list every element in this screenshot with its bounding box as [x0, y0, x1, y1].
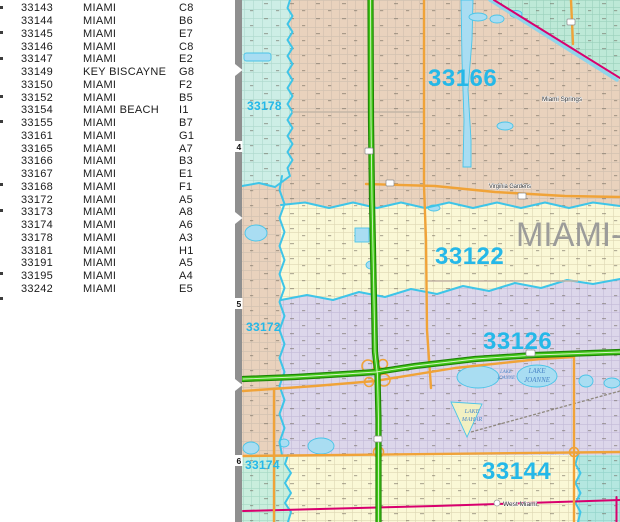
route-shield-icon: [374, 436, 382, 442]
zip-code-cell: 33147: [21, 53, 83, 65]
grid-ref-cell: B6: [179, 15, 235, 27]
zip-table: 33143MIAMIC833144MIAMIB633145MIAMIE73314…: [0, 2, 235, 295]
city-cell: MIAMI: [83, 181, 179, 193]
city-cell: MIAMI: [83, 168, 179, 180]
zip-table-row: 33144MIAMIB6: [0, 15, 235, 28]
grid-ref-cell: B5: [179, 92, 235, 104]
zip-code-cell: 33168: [21, 181, 83, 193]
zip-table-row: 33174MIAMIA6: [0, 219, 235, 232]
grid-ref-cell: G8: [179, 66, 235, 78]
zip-table-row: 33195MIAMIA4: [0, 270, 235, 283]
zip-table-row: 33167MIAMIE1: [0, 168, 235, 181]
city-cell: MIAMI: [83, 117, 179, 129]
route-shield-icon: [365, 148, 373, 154]
svg-text:MAHAR: MAHAR: [461, 417, 483, 423]
zipcode-index-panel: 33143MIAMIC833144MIAMIB633145MIAMIE73314…: [0, 0, 235, 522]
lake: [579, 375, 593, 387]
zip-code-cell: 33144: [21, 15, 83, 27]
city-cell: MIAMI BEACH: [83, 104, 179, 116]
zip-code-cell: 33172: [21, 194, 83, 206]
city-cell: MIAMI: [83, 92, 179, 104]
city-cell: MIAMI: [83, 270, 179, 282]
place-label-west-miami: West Miami: [503, 501, 537, 508]
grid-ref-cell: G1: [179, 130, 235, 142]
grid-row-label-5: 5: [237, 299, 242, 309]
zip-table-row: 33166MIAMIB3: [0, 155, 235, 168]
svg-text:JOANNE: JOANNE: [497, 376, 515, 381]
city-cell: MIAMI: [83, 219, 179, 231]
zip-label-33178: 33178: [247, 99, 282, 113]
lake: [243, 442, 259, 454]
zip-code-cell: 33166: [21, 155, 83, 167]
svg-text:LAKE: LAKE: [527, 367, 546, 375]
city-cell: MIAMI: [83, 283, 179, 295]
city-cell: MIAMI: [83, 232, 179, 244]
grid-ref-cell: B3: [179, 155, 235, 167]
svg-text:LAKE: LAKE: [464, 409, 480, 415]
zip-label-33166: 33166: [428, 65, 497, 92]
zip-table-row: 33143MIAMIC8: [0, 2, 235, 15]
zip-table-row: 33147MIAMIE2: [0, 53, 235, 66]
zip-code-cell: 33143: [21, 2, 83, 14]
zip-code-cell: 33181: [21, 245, 83, 257]
zip-code-cell: 33242: [21, 283, 83, 295]
grid-ref-cell: A6: [179, 219, 235, 231]
zip-code-cell: 33155: [21, 117, 83, 129]
zip-table-row: 33150MIAMIF2: [0, 79, 235, 92]
place-label-miami-springs: Miami Springs: [542, 96, 583, 103]
zip-code-cell: 33152: [21, 92, 83, 104]
route-shield-icon: [386, 180, 394, 186]
city-cell: MIAMI: [83, 245, 179, 257]
city-cell: MIAMI: [83, 130, 179, 142]
city-cell: MIAMI: [83, 143, 179, 155]
zip-table-row: 33161MIAMIG1: [0, 130, 235, 143]
route-shield-icon: [567, 19, 575, 25]
zip-table-row: 33168MIAMIF1: [0, 181, 235, 194]
zip-table-row: 33172MIAMIA5: [0, 193, 235, 206]
grid-ref-cell: A5: [179, 257, 235, 269]
zip-label-33122: 33122: [435, 243, 504, 270]
city-cell: MIAMI: [83, 194, 179, 206]
city-cell: MIAMI: [83, 15, 179, 27]
grid-ref-cell: B7: [179, 117, 235, 129]
svg-text:LAKE: LAKE: [499, 370, 512, 375]
grid-ref-cell: H1: [179, 245, 235, 257]
grid-row-label-6: 6: [237, 456, 242, 466]
zip-code-cell: 33178: [21, 232, 83, 244]
zip-label-33126: 33126: [483, 328, 552, 355]
lake: [244, 53, 271, 61]
zip-table-row: 33173MIAMIA8: [0, 206, 235, 219]
grid-row-label-4: 4: [237, 142, 242, 152]
lake-west-of-joanne: [457, 366, 499, 388]
zip-table-row: 33149KEY BISCAYNEG8: [0, 66, 235, 79]
grid-ref-cell: F1: [179, 181, 235, 193]
zip-code-cell: 33154: [21, 104, 83, 116]
grid-ref-cell: A7: [179, 143, 235, 155]
route-shield-icon: [518, 193, 526, 199]
zip-label-33144: 33144: [482, 458, 551, 485]
zip-code-cell: 33195: [21, 270, 83, 282]
grid-ref-cell: A4: [179, 270, 235, 282]
zip-code-cell: 33161: [21, 130, 83, 142]
zip-label-33172: 33172: [246, 320, 281, 334]
zipcode-map-page: 33143MIAMIC833144MIAMIB633145MIAMIE73314…: [0, 0, 620, 522]
city-cell: MIAMI: [83, 206, 179, 218]
grid-ref-cell: C8: [179, 41, 235, 53]
zip-table-row: 33242MIAMIE5: [0, 283, 235, 296]
county-label-miami-dade: MIAMI-: [516, 216, 620, 254]
zip-table-row: 33145MIAMIE7: [0, 28, 235, 41]
zip-code-cell: 33149: [21, 66, 83, 78]
zip-code-cell: 33150: [21, 79, 83, 91]
grid-ref-cell: F2: [179, 79, 235, 91]
lake: [604, 378, 620, 388]
zip-code-cell: 33165: [21, 143, 83, 155]
grid-ref-cell: A3: [179, 232, 235, 244]
city-cell: MIAMI: [83, 2, 179, 14]
city-cell: KEY BISCAYNE: [83, 66, 179, 78]
city-cell: MIAMI: [83, 28, 179, 40]
zip-table-row: 33146MIAMIC8: [0, 40, 235, 53]
zip-table-row: 33155MIAMIB7: [0, 117, 235, 130]
grid-ref-cell: A8: [179, 206, 235, 218]
map-panel: 4 5 6 33178 33166 33122 33126 33144 3317…: [235, 0, 620, 522]
zip-table-row: 33191MIAMIA5: [0, 257, 235, 270]
grid-ref-cell: I1: [179, 104, 235, 116]
grid-ref-cell: C8: [179, 2, 235, 14]
miami-zip-map: 4 5 6 33178 33166 33122 33126 33144 3317…: [235, 0, 620, 522]
zip-code-cell: 33174: [21, 219, 83, 231]
zip-code-cell: 33145: [21, 28, 83, 40]
pond: [308, 438, 334, 454]
zip-table-row: 33181MIAMIH1: [0, 244, 235, 257]
city-cell: MIAMI: [83, 257, 179, 269]
city-cell: MIAMI: [83, 79, 179, 91]
grid-ref-cell: E7: [179, 28, 235, 40]
grid-ref-cell: E1: [179, 168, 235, 180]
pond: [490, 15, 504, 23]
svg-text:JOANNE: JOANNE: [524, 376, 551, 384]
place-label-virginia-gardens: Virginia Gardens: [489, 183, 532, 190]
zip-table-row: 33178MIAMIA3: [0, 232, 235, 245]
zip-code-cell: 33167: [21, 168, 83, 180]
city-cell: MIAMI: [83, 53, 179, 65]
zip-table-body: 33143MIAMIC833144MIAMIB633145MIAMIE73314…: [0, 2, 235, 295]
city-cell: MIAMI: [83, 155, 179, 167]
pond: [469, 13, 487, 21]
zip-code-cell: 33146: [21, 41, 83, 53]
zip-code-cell: 33191: [21, 257, 83, 269]
zip-table-row: 33154MIAMI BEACHI1: [0, 104, 235, 117]
pond: [497, 122, 513, 130]
grid-ref-cell: A5: [179, 194, 235, 206]
zip-code-cell: 33173: [21, 206, 83, 218]
lake: [245, 225, 267, 241]
map-neatline: 4 5 6: [235, 0, 243, 522]
city-cell: MIAMI: [83, 41, 179, 53]
grid-ref-cell: E2: [179, 53, 235, 65]
zip-table-row: 33152MIAMIB5: [0, 91, 235, 104]
grid-ref-cell: E5: [179, 283, 235, 295]
zip-table-row: 33165MIAMIA7: [0, 142, 235, 155]
zip-label-33174: 33174: [245, 458, 280, 472]
city-marker-west-miami: [494, 500, 500, 506]
pond: [355, 228, 369, 242]
